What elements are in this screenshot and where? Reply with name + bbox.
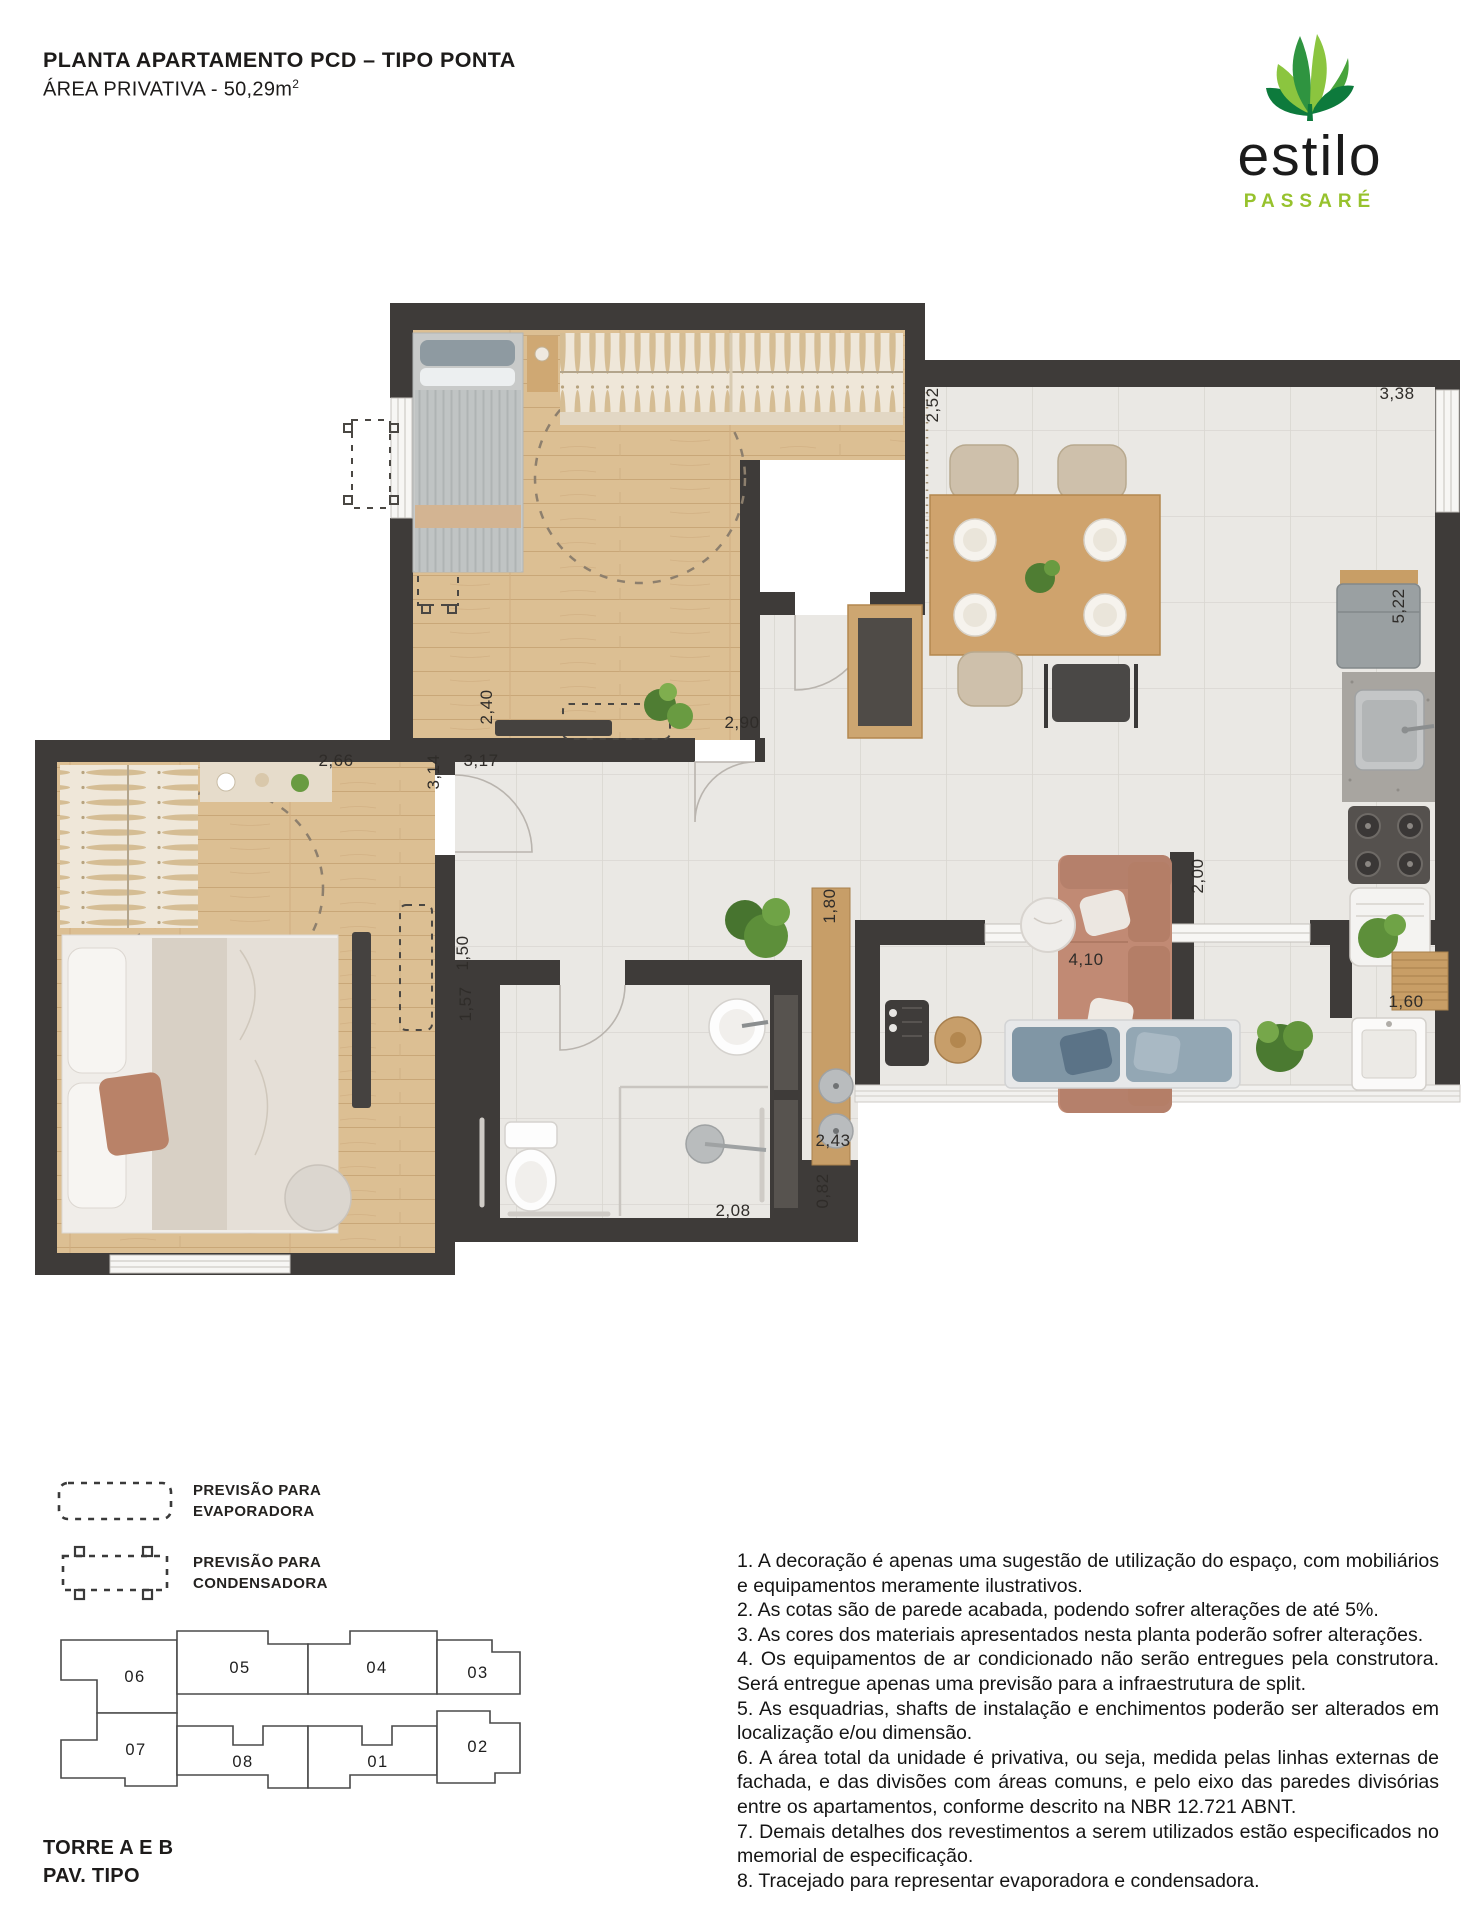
condensadora-symbol <box>55 1542 177 1604</box>
coffee-table <box>1021 898 1075 952</box>
bedroom2-window <box>110 1255 290 1273</box>
dimension-label: 0,82 <box>813 1173 832 1208</box>
keyplan-unit-label: 01 <box>367 1753 388 1771</box>
legend-item-evaporadora: PREVISÃO PARA EVAPORADORA <box>55 1478 328 1524</box>
dimension-label: 2,00 <box>1188 858 1207 893</box>
cup <box>535 347 549 361</box>
keyplan-unit-label: 05 <box>229 1659 250 1677</box>
dimension-label: 1,57 <box>456 986 475 1021</box>
floor-plan: 2,402,903,172,663,142,523,385,221,501,57… <box>0 0 1477 1345</box>
pav-label: PAV. TIPO <box>43 1862 173 1890</box>
grill <box>885 1000 929 1066</box>
toilet <box>505 1122 557 1211</box>
dimension-label: 1,50 <box>453 935 472 970</box>
dimension-label: 1,80 <box>820 888 839 923</box>
sideboard <box>848 605 922 738</box>
keyplan-unit-label: 08 <box>232 1753 253 1771</box>
dimension-label: 2,90 <box>724 713 759 732</box>
legend-label: PREVISÃO PARA EVAPORADORA <box>193 1480 321 1522</box>
wardrobe-shelf <box>560 412 903 425</box>
laundry-tank <box>1352 1018 1426 1090</box>
keyplan-unit-label: 06 <box>124 1668 145 1686</box>
note-item: 3. As cores dos materiais apresentados n… <box>737 1623 1439 1648</box>
keyplan-unit-06 <box>61 1640 177 1713</box>
dimension-label: 3,14 <box>424 754 443 789</box>
dimension-label: 3,38 <box>1379 384 1414 403</box>
dimension-label: 2,52 <box>923 387 942 422</box>
chair <box>1058 445 1126 500</box>
high-chair <box>1046 664 1136 728</box>
chair <box>950 445 1018 500</box>
note-item: 4. Os equipamentos de ar condicionado nã… <box>737 1647 1439 1696</box>
torre-label: TORRE A E B <box>43 1834 173 1862</box>
keyplan-unit-07 <box>61 1713 177 1786</box>
dimension-label: 1,60 <box>1388 992 1423 1011</box>
keyplan-unit-label: 03 <box>467 1664 488 1682</box>
wall-niche <box>774 995 798 1090</box>
note-item: 6. A área total da unidade é privativa, … <box>737 1746 1439 1820</box>
tv-panel <box>352 932 371 1108</box>
nightstand <box>527 336 558 392</box>
note-item: 1. A decoração é apenas uma sugestão de … <box>737 1549 1439 1598</box>
legend-item-condensadora: PREVISÃO PARA CONDENSADORA <box>55 1542 328 1604</box>
wall-niche <box>774 1100 798 1208</box>
shelf <box>1340 570 1418 584</box>
tv-console <box>495 720 612 736</box>
dimension-label: 2,40 <box>477 689 496 724</box>
legend-label: PREVISÃO PARA CONDENSADORA <box>193 1552 328 1594</box>
chair <box>958 652 1022 706</box>
bedroom1-window <box>391 398 412 518</box>
notes-list: 1. A decoração é apenas uma sugestão de … <box>737 1549 1439 1893</box>
dimension-label: 2,43 <box>815 1131 850 1150</box>
pouf <box>285 1165 351 1231</box>
legend: PREVISÃO PARA EVAPORADORA PREVISÃO PARA … <box>55 1478 328 1622</box>
dimension-label: 5,22 <box>1389 588 1408 623</box>
dimension-label: 4,10 <box>1068 950 1103 969</box>
note-item: 7. Demais detalhes dos revestimentos a s… <box>737 1820 1439 1869</box>
stove <box>1348 806 1430 884</box>
bench <box>1005 1020 1240 1088</box>
sink <box>1355 690 1434 770</box>
keyplan-caption: TORRE A E B PAV. TIPO <box>43 1834 173 1890</box>
keyplan-unit-label: 07 <box>125 1741 146 1759</box>
dimension-label: 2,08 <box>715 1201 750 1220</box>
keyplan-unit-label: 04 <box>366 1659 387 1677</box>
dimension-label: 2,66 <box>318 751 353 770</box>
condensadora-outside-left <box>344 420 398 508</box>
shelf-plant <box>291 774 309 792</box>
note-item: 8. Tracejado para representar evaporador… <box>737 1869 1439 1894</box>
living-window <box>1436 390 1459 512</box>
dimension-label: 3,17 <box>463 751 498 770</box>
bed-single <box>413 333 523 572</box>
keyplan: 0605040307080102 <box>40 1628 525 1803</box>
floor-plan-sheet: PLANTA APARTAMENTO PCD – TIPO PONTA ÁREA… <box>0 0 1477 1920</box>
keyplan-unit-label: 02 <box>467 1738 488 1756</box>
evaporadora-symbol <box>55 1478 177 1524</box>
note-item: 2. As cotas são de parede acabada, poden… <box>737 1598 1439 1623</box>
note-item: 5. As esquadrias, shafts de instalação e… <box>737 1697 1439 1746</box>
